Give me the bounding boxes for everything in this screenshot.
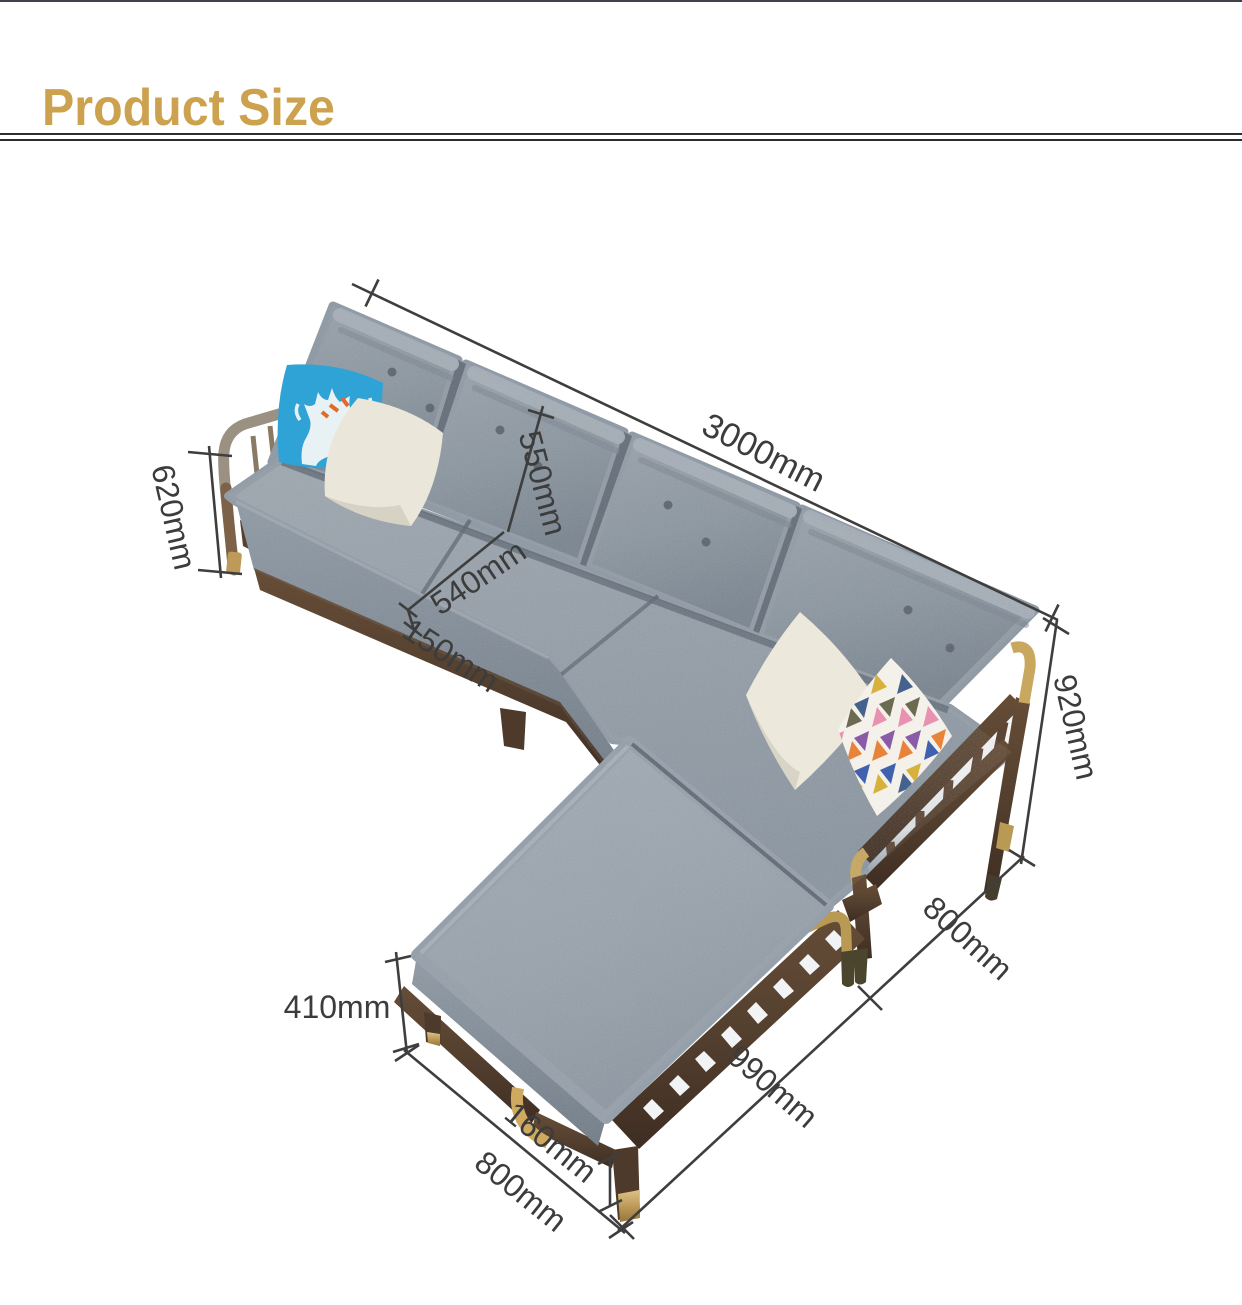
svg-text:800mm: 800mm (916, 889, 1019, 987)
svg-text:410mm: 410mm (284, 989, 391, 1025)
svg-text:620mm: 620mm (144, 461, 203, 573)
svg-text:920mm: 920mm (1046, 671, 1105, 783)
